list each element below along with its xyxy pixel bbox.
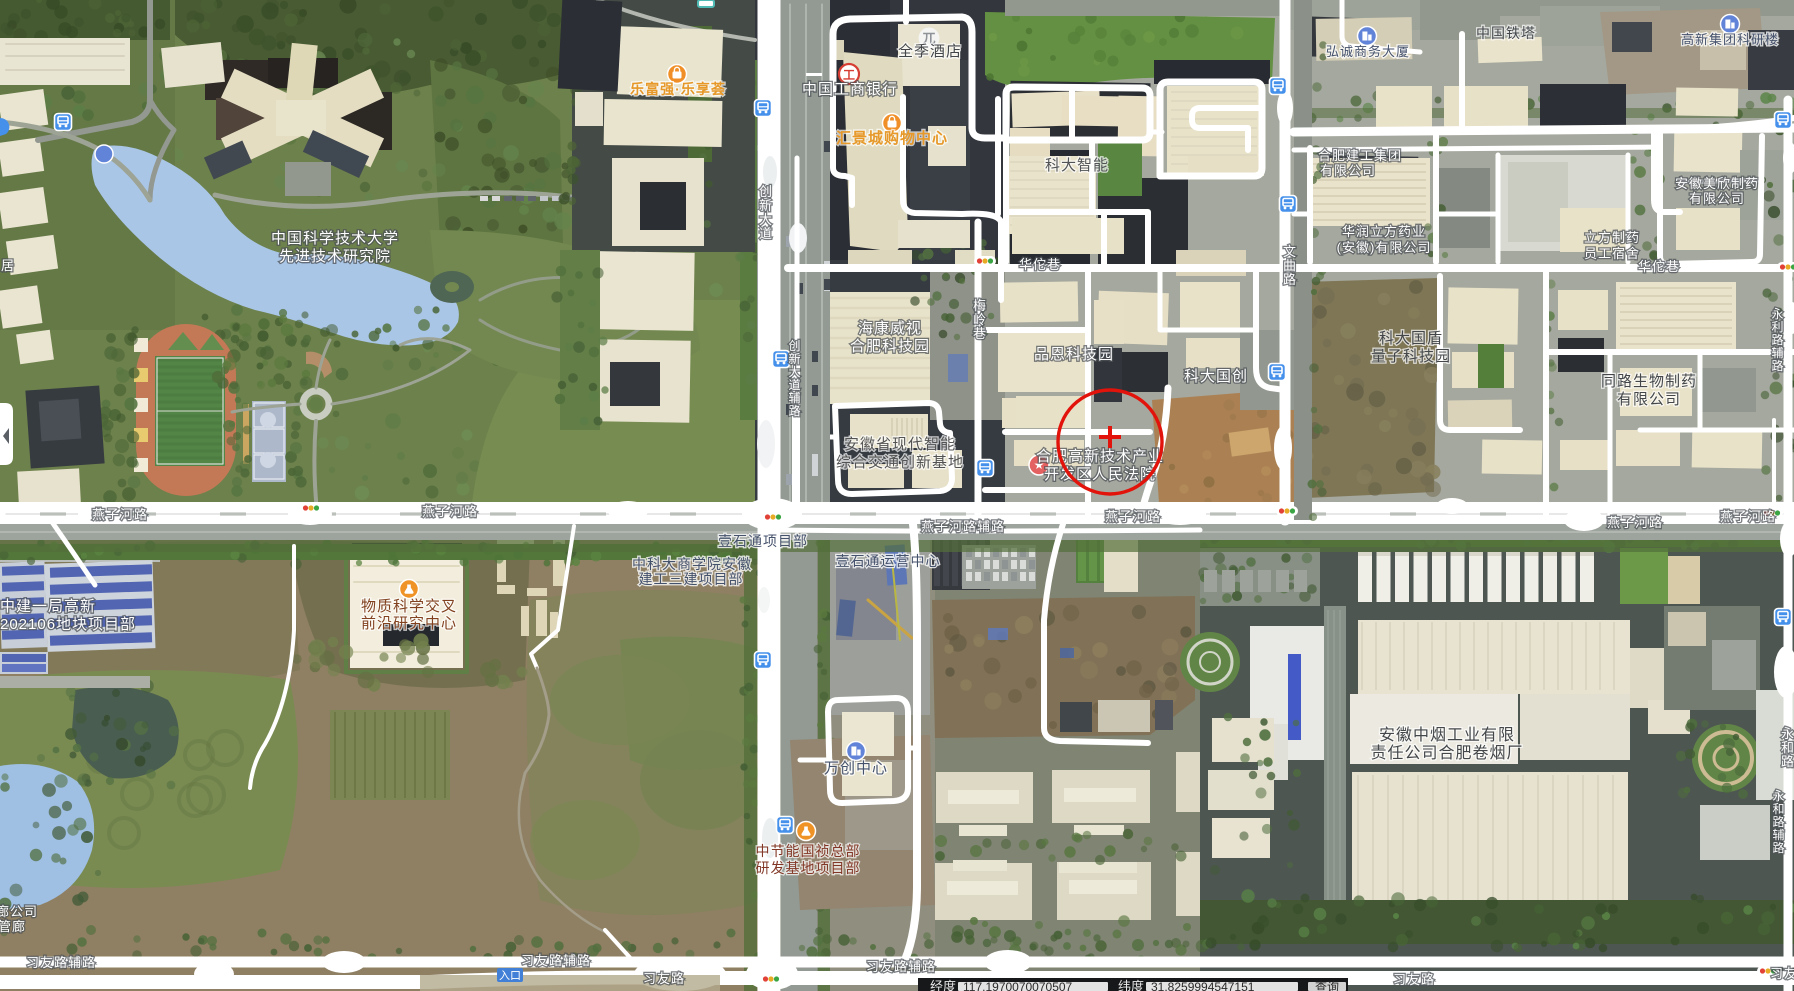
svg-text:查询: 查询: [1315, 980, 1339, 991]
svg-text:经度: 经度: [930, 979, 956, 991]
svg-text:31.8259994547151: 31.8259994547151: [1151, 980, 1255, 991]
svg-text:117.1970070070507: 117.1970070070507: [963, 980, 1073, 991]
svg-text:纬度: 纬度: [1118, 979, 1144, 991]
